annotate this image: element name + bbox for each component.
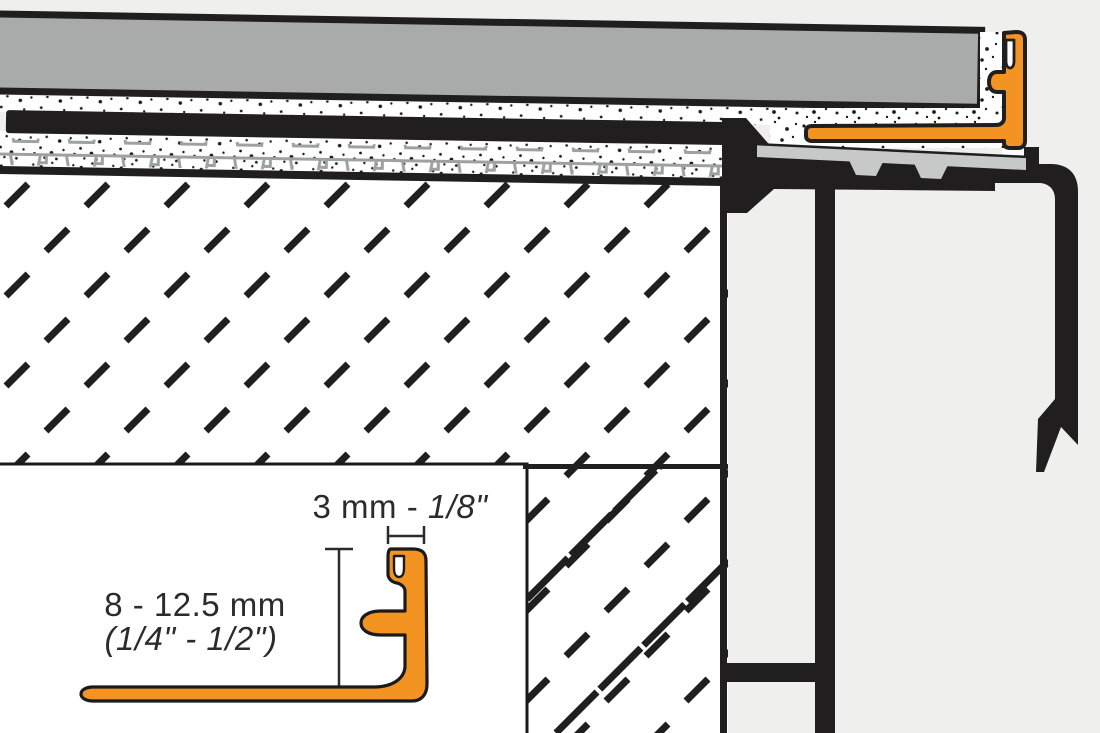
height-dimension-imperial-label: (1/4" - 1/2") bbox=[88, 620, 294, 658]
slab-edge-line bbox=[720, 180, 727, 733]
height-dimension-imperial: (1/4" - 1/2") bbox=[105, 620, 278, 657]
profile-installation-drawing: 3 mm - 1/8" 8 - 12.5 mm (1/4" - 1/2") bbox=[0, 0, 1100, 733]
inset-profile-slot bbox=[394, 556, 404, 577]
width-dimension-metric: 3 mm - bbox=[313, 488, 428, 525]
material-boundary-line bbox=[523, 464, 728, 469]
height-dimension-label: 8 - 12.5 mm bbox=[92, 586, 298, 624]
height-dimension-metric: 8 - 12.5 mm bbox=[104, 586, 286, 623]
width-dimension-label: 3 mm - 1/8" bbox=[295, 488, 505, 526]
profile-vertical-leg bbox=[815, 183, 835, 733]
tile-layer bbox=[0, 14, 982, 107]
width-dimension-imperial: 1/8" bbox=[428, 488, 488, 525]
profile-joint-slot bbox=[1006, 40, 1014, 68]
profile-support-bracket bbox=[723, 663, 818, 682]
